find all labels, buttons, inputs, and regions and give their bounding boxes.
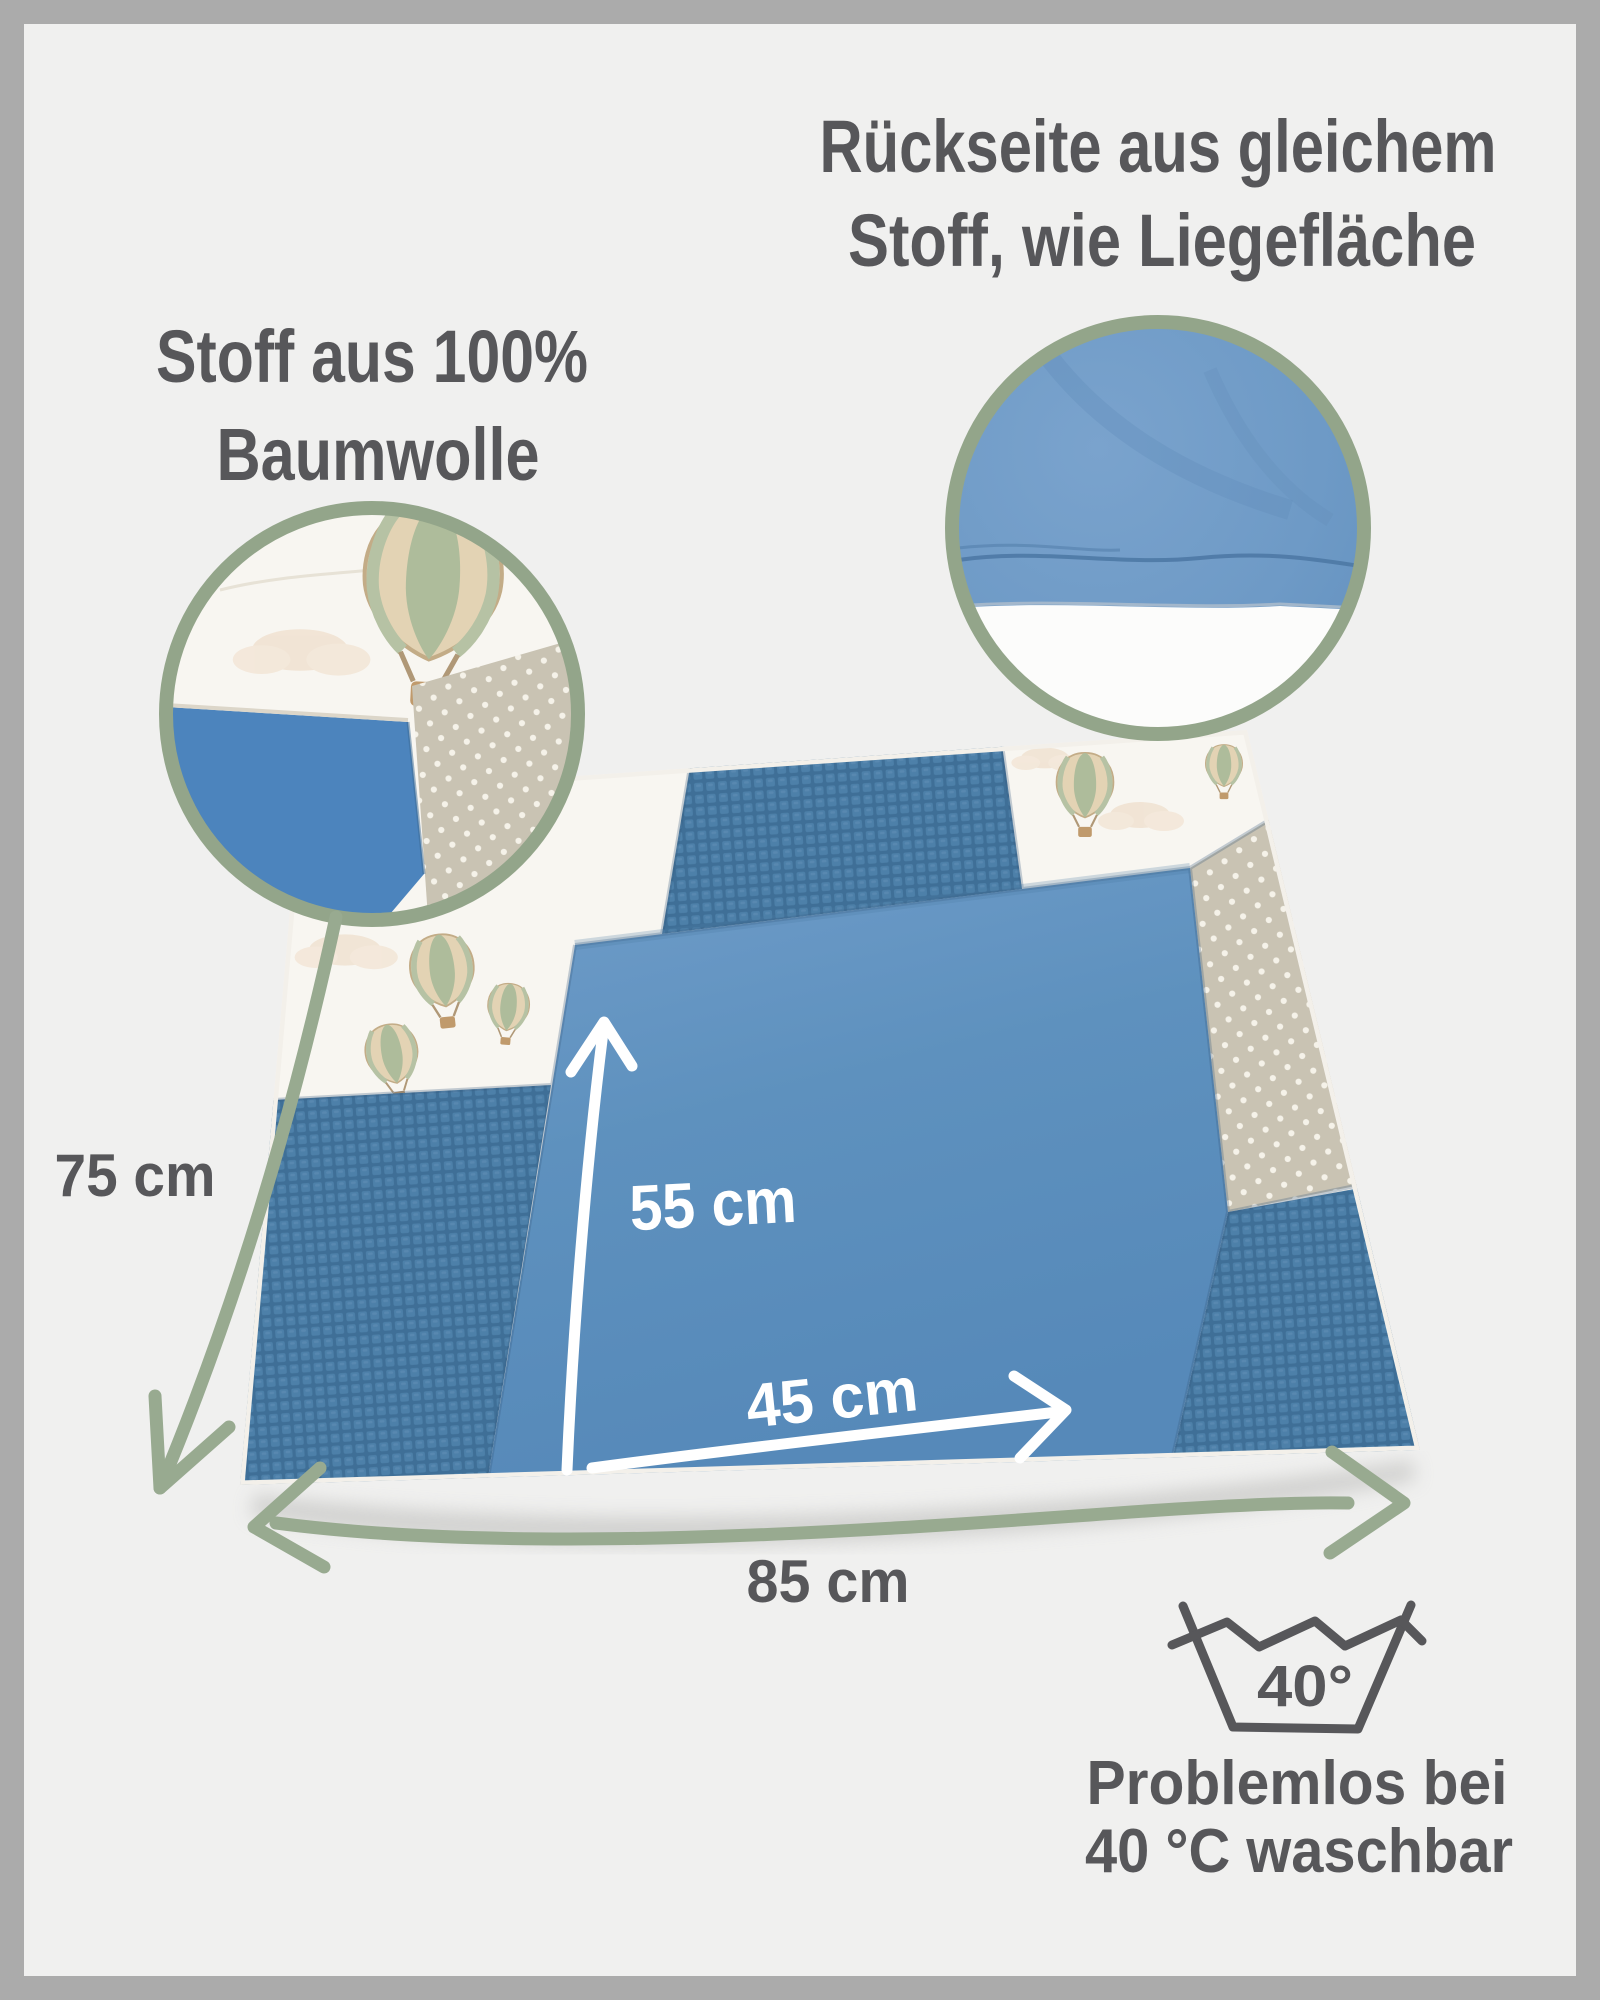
product-image: Rückseite aus gleichem Stoff, wie Liegef…	[0, 0, 1600, 2000]
mat-width-label: 85 cm	[747, 1548, 910, 1615]
fabric-note-line1: Stoff aus 100%	[156, 315, 588, 398]
backside-detail-inset	[952, 322, 1365, 735]
care-note-line1: Problemlos bei	[1087, 1749, 1508, 1818]
mat-height-label: 75 cm	[55, 1142, 216, 1209]
surface-height-label: 55 cm	[628, 1164, 799, 1245]
product-infographic: Rückseite aus gleichem Stoff, wie Liegef…	[0, 0, 1600, 2000]
backside-note-line2: Stoff, wie Liegefläche	[848, 199, 1476, 282]
wash-temperature-label: 40°	[1257, 1654, 1353, 1719]
care-note-line2: 40 °C waschbar	[1085, 1817, 1513, 1886]
backside-note-line1: Rückseite aus gleichem	[820, 105, 1497, 188]
fabric-note-line2: Baumwolle	[217, 413, 540, 496]
